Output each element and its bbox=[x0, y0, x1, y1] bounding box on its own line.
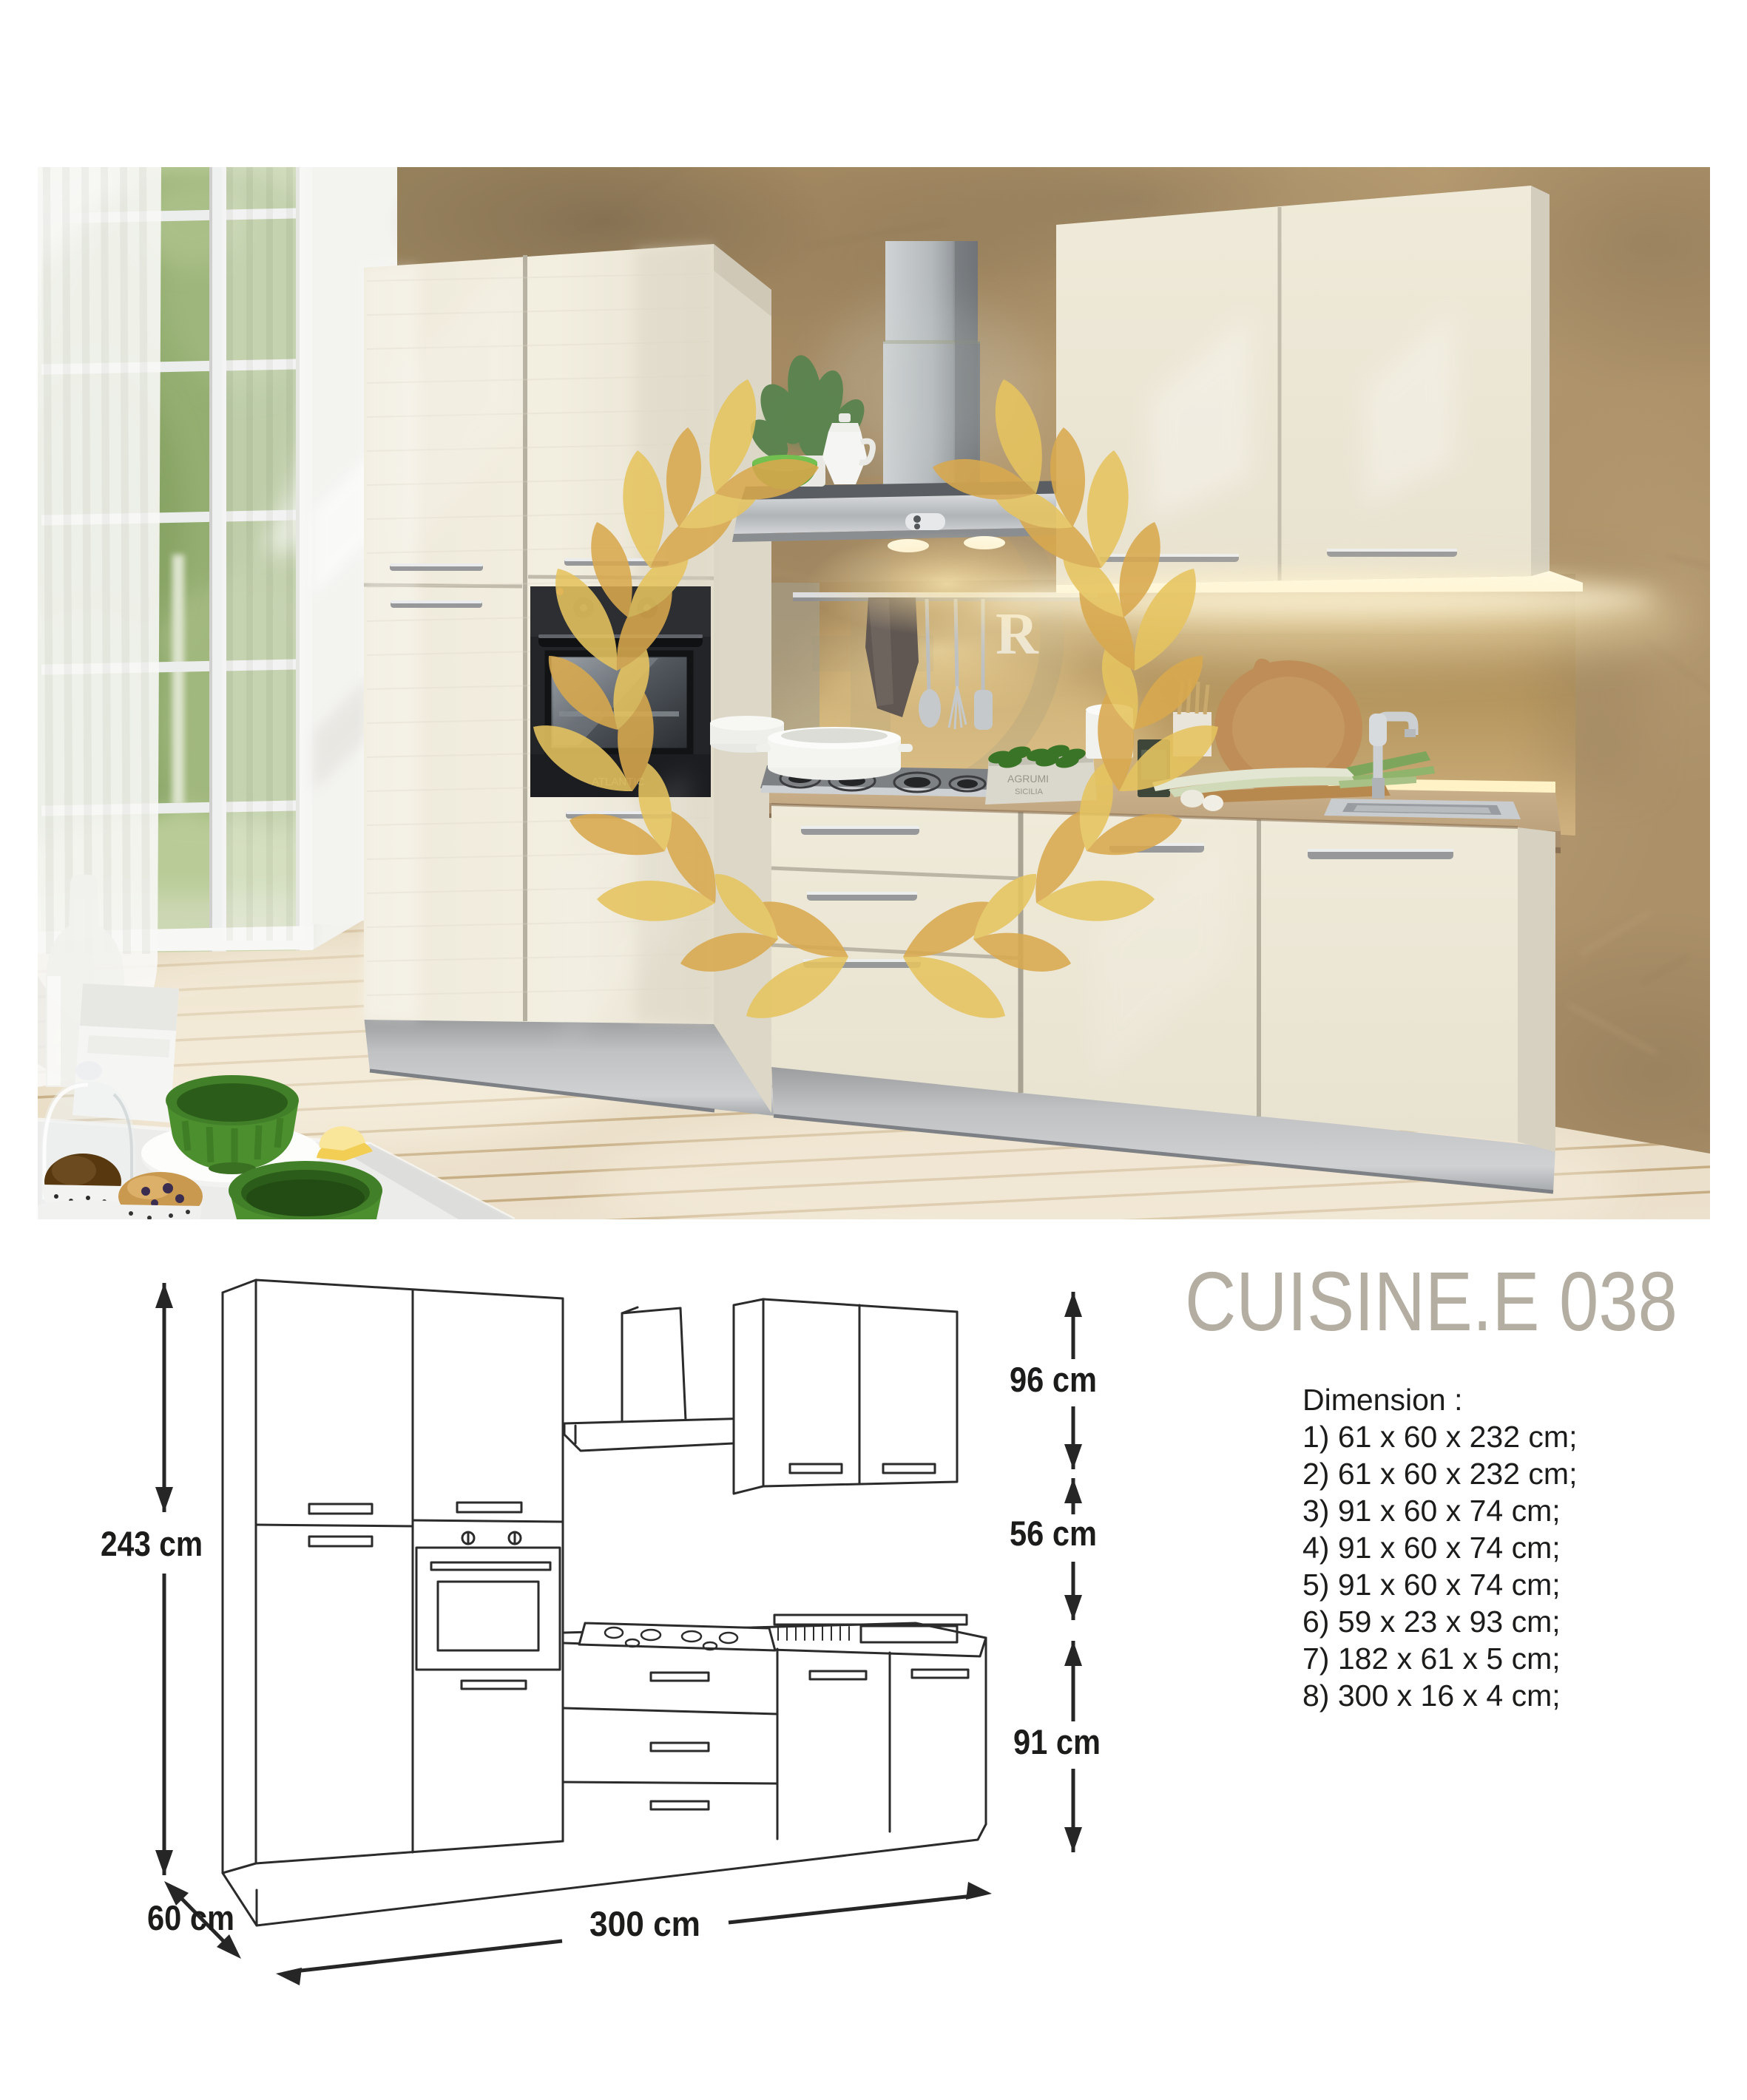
svg-text:56 cm: 56 cm bbox=[1010, 1514, 1097, 1553]
svg-text:300 cm: 300 cm bbox=[589, 1904, 700, 1943]
svg-text:91 cm: 91 cm bbox=[1013, 1722, 1101, 1761]
svg-text:243 cm: 243 cm bbox=[101, 1524, 203, 1563]
svg-text:SICILIA: SICILIA bbox=[1015, 787, 1044, 796]
svg-text:60 cm: 60 cm bbox=[147, 1898, 234, 1937]
svg-text:CUISINE.E 038: CUISINE.E 038 bbox=[1185, 1255, 1677, 1348]
svg-text:96 cm: 96 cm bbox=[1010, 1360, 1097, 1399]
svg-text:Dimension :1) 61 x 60 x 232 cm: Dimension :1) 61 x 60 x 232 cm;2) 61 x 6… bbox=[1302, 1383, 1577, 1713]
svg-text:AGRUMI: AGRUMI bbox=[1007, 773, 1049, 785]
